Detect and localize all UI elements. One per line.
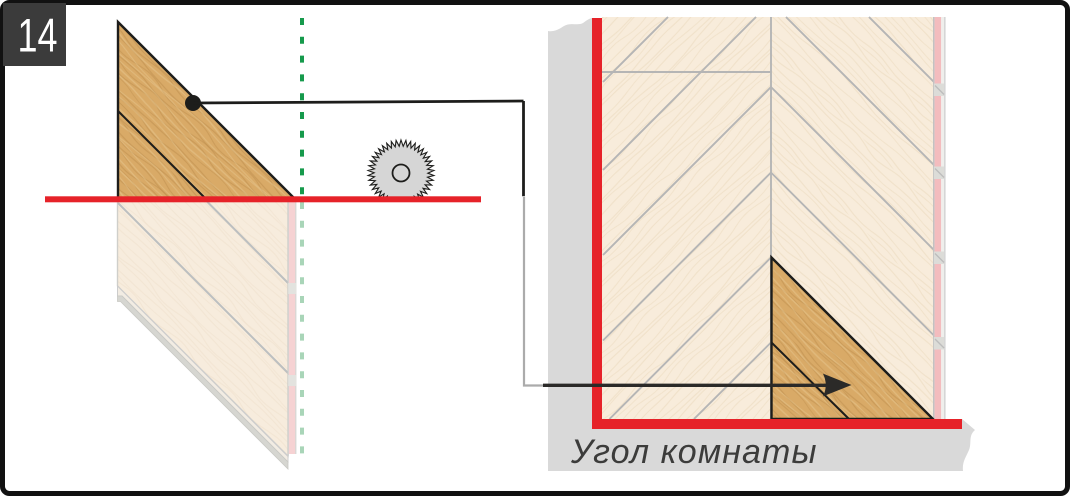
svg-text:14: 14 xyxy=(18,9,58,62)
svg-text:Угол комнаты: Угол комнаты xyxy=(570,433,818,471)
